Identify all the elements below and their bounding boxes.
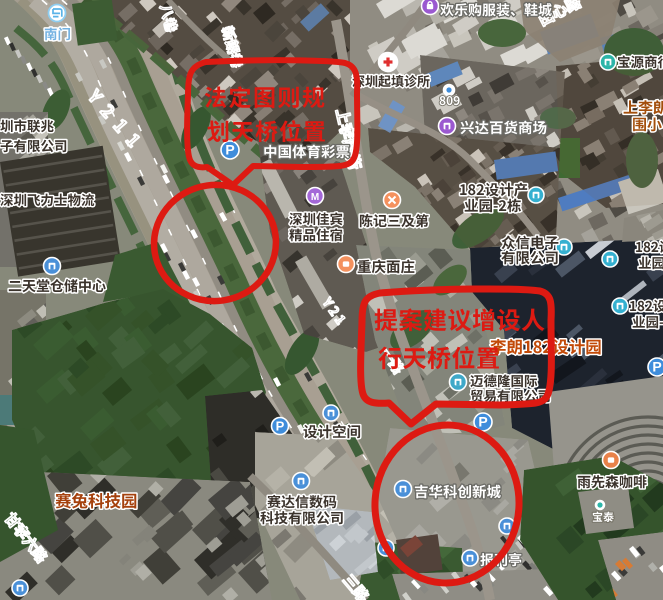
svg-text:P: P [276, 418, 285, 433]
svg-text:P: P [478, 414, 487, 430]
svg-text:P: P [652, 359, 661, 375]
svg-text:P: P [225, 142, 234, 158]
svg-text:M: M [311, 192, 319, 203]
